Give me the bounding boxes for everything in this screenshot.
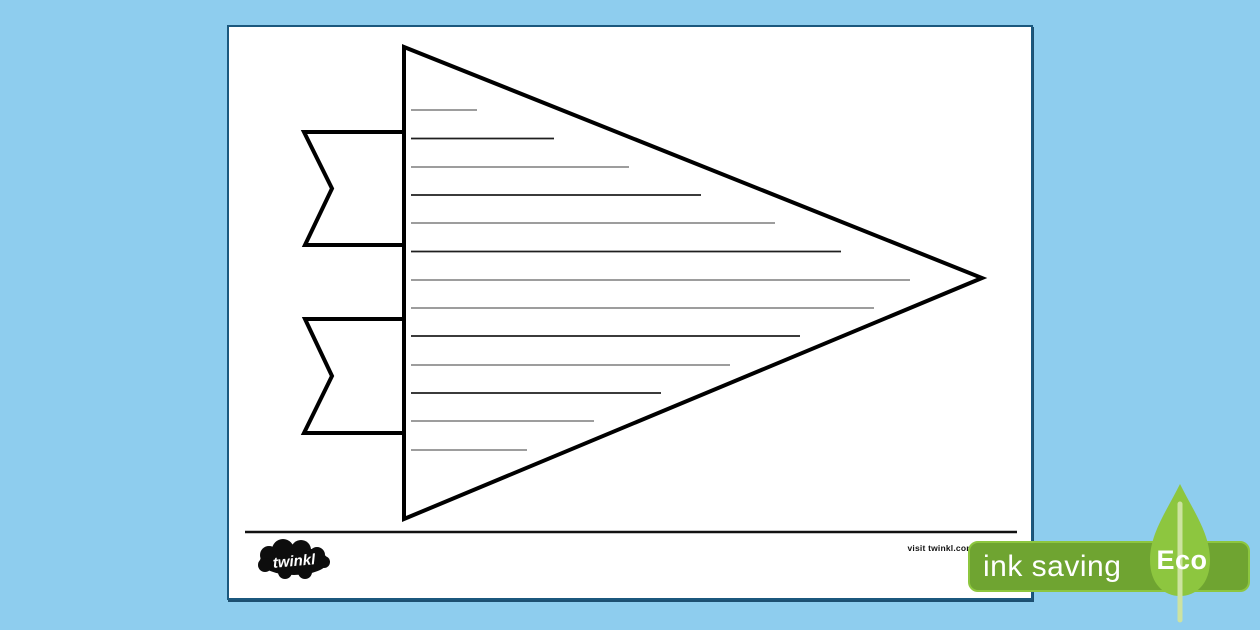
- twinkl-cloud-icon: twinkl: [255, 539, 335, 581]
- twinkl-logo: twinkl: [255, 539, 335, 581]
- ribbon-label-bottom: [304, 319, 404, 433]
- canvas-background: twinkl visit twinkl.com ink saving Eco: [0, 0, 1260, 630]
- ribbon-label-top: [304, 132, 404, 245]
- pennant-art: [229, 27, 1031, 598]
- pennant-triangle: [404, 47, 982, 519]
- eco-label: Eco: [1152, 545, 1212, 576]
- worksheet-page: twinkl visit twinkl.com: [227, 25, 1033, 600]
- visit-twinkl-text: visit twinkl.com: [908, 543, 975, 553]
- ink-saving-label: ink saving: [970, 552, 1121, 582]
